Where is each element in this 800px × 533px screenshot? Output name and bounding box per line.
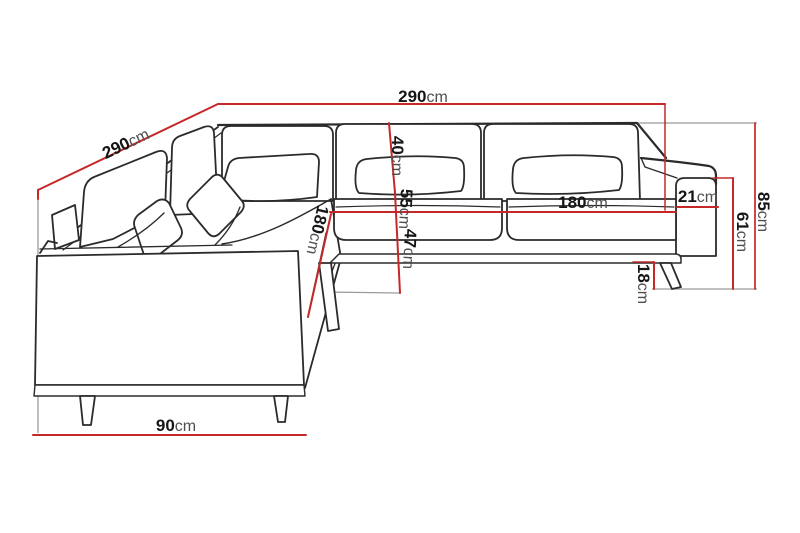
left-front-face [35, 251, 304, 385]
sofa-line-drawing [0, 0, 800, 533]
right-leg [660, 263, 681, 289]
sofa-dimension-diagram: 290cm 290cm 40cm 55cm 47cm 180cm 21cm 18… [0, 0, 800, 533]
pillow-lumbar-2 [512, 155, 622, 194]
armrest-front-face [676, 178, 716, 256]
sofa-outline [34, 123, 716, 425]
center-base-rail [330, 254, 681, 263]
left-base-rail [34, 385, 305, 396]
pillow-lumbar-1 [355, 156, 464, 194]
left-leg-1 [80, 396, 95, 425]
left-leg-2 [274, 396, 288, 422]
